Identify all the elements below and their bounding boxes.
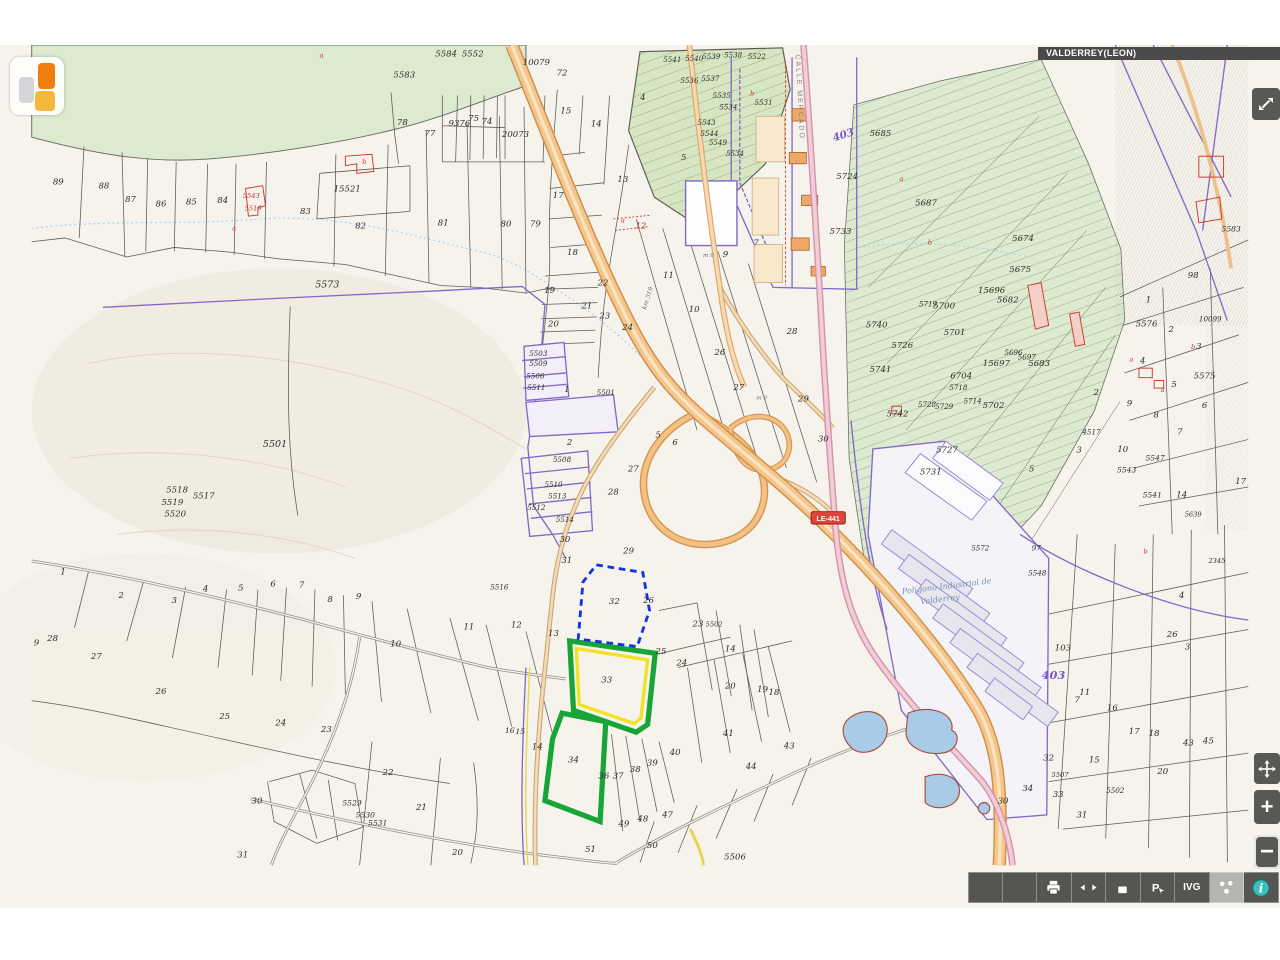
parcel-label: 21 — [580, 301, 592, 311]
parcel-label: 20073 — [501, 130, 530, 140]
parcel-label: a — [320, 51, 324, 59]
parcel-label: a — [1161, 386, 1165, 394]
parcel-label: 20 — [451, 848, 463, 858]
parcel-label: 5728 — [918, 400, 937, 409]
parcel-label: 5519 — [162, 498, 184, 508]
parcel-label: 5724 — [836, 172, 858, 182]
zoom-search-button[interactable] — [1003, 872, 1038, 903]
parcel-label: 5518 — [166, 486, 188, 496]
parcel-label: 34 — [568, 756, 579, 766]
parcel-label: 5512 — [527, 503, 546, 512]
parcel-label: 5702 — [983, 401, 1005, 411]
parcel-label: 5520 — [164, 509, 186, 519]
parcel-label: 5740 — [866, 320, 888, 330]
parcel-label: 9 — [356, 592, 362, 602]
parcel-label: 19 — [757, 685, 768, 695]
parcel-label: 16 — [505, 726, 515, 735]
parcel-label: 72 — [557, 68, 568, 78]
layers-share-button[interactable] — [1210, 872, 1245, 903]
parcel-label: 17 — [1235, 477, 1246, 487]
parcel-label: 11 — [1079, 688, 1090, 698]
parcel-label: 87 — [125, 195, 136, 205]
parcel-label: 14 — [532, 742, 543, 752]
parcel-label: 16 — [1107, 703, 1118, 713]
parcel-label: b — [362, 158, 366, 166]
parcel-label: 14 — [725, 644, 736, 654]
parcel-label: 13 — [548, 629, 559, 639]
parcel-label: 403 — [1042, 668, 1066, 682]
parcel-label: a — [621, 217, 625, 225]
parcel-label: 6 — [270, 580, 276, 590]
zoom-in-button[interactable]: + — [1254, 790, 1280, 824]
parcel-label: 26 — [155, 687, 167, 697]
parcel-label: 5506 — [724, 853, 746, 863]
parcel-label: 10 — [1117, 445, 1128, 455]
fullscreen-button[interactable] — [1252, 88, 1280, 120]
parcel-label: 5575 — [1194, 372, 1216, 382]
parcel-label: 31 — [561, 556, 572, 566]
parcel-label: 15697 — [983, 359, 1011, 369]
parcel-label: 26 — [1166, 630, 1178, 640]
parcel-label: 29 — [622, 546, 634, 556]
parcel-label: 5718 — [949, 383, 968, 392]
parcel-label: 11 — [463, 623, 474, 633]
parcel-label: 31 — [1077, 811, 1088, 821]
p-label: P — [1152, 882, 1160, 894]
parcel-label: 30 — [818, 434, 829, 444]
parcel-label: 4 — [1178, 591, 1184, 601]
parcel-label: 27 — [90, 652, 102, 662]
parcel-label: 24 — [675, 659, 687, 669]
parcel-label: b — [1144, 547, 1148, 555]
parcel-label: 79 — [530, 220, 541, 230]
parcel-label: 18 — [769, 688, 780, 698]
parcel-label: 5741 — [870, 365, 892, 375]
parcel-label: 3 — [1076, 446, 1082, 456]
parcel-label: 41 — [722, 729, 734, 739]
parcel-label: 2 — [566, 438, 572, 448]
parcel-label: 5 — [681, 153, 686, 163]
parcel-label: 5639 — [1185, 510, 1203, 518]
parcel-label: 24 — [274, 719, 286, 729]
parcel-label: a — [232, 224, 236, 232]
parcel-label: 30 — [252, 796, 263, 806]
parcel-label: 5507 — [1052, 771, 1070, 779]
parcel-label: 5552 — [462, 49, 484, 59]
parcel-label: 5516 — [490, 583, 509, 592]
parcel-label: 5508 — [553, 455, 572, 464]
parcel-label: 3 — [1185, 642, 1191, 652]
parcel-label: 14 — [591, 120, 602, 130]
parcel-label: 15696 — [978, 286, 1006, 296]
parcel-label: 10079 — [523, 58, 551, 68]
parcel-label: 18 — [1149, 729, 1160, 739]
parcel-label: 97 — [1032, 544, 1042, 553]
parcel-label: 77 — [425, 129, 436, 139]
parcel-label: 13 — [617, 175, 628, 185]
parcel-label: 5513 — [548, 491, 567, 500]
parcel-label: LE-441 — [817, 515, 840, 523]
parcel-label: 10 — [390, 640, 401, 650]
parcel-label: 10 — [689, 305, 700, 315]
parcel-label: 5522 — [748, 52, 767, 61]
parcel-label: 83 — [300, 207, 311, 217]
parcel-label: 8 — [1153, 411, 1159, 421]
parcel-label: b — [928, 239, 932, 247]
parcel-tool-button[interactable]: P — [1141, 872, 1176, 903]
parcel-label: 5543 — [243, 192, 260, 200]
parcel-label: 18 — [567, 248, 578, 258]
parcel-label: 5714 — [964, 396, 982, 405]
parcel-label: 20 — [547, 319, 559, 329]
parcel-label: 11 — [663, 271, 674, 281]
parcel-label: 5534 — [726, 149, 744, 158]
parcel-label: 5727 — [936, 446, 958, 456]
parcel-label: 5538 — [724, 50, 743, 59]
parcel-label: 5683 — [1028, 359, 1050, 369]
parcel-label: 82 — [355, 221, 366, 231]
parcel-label: 89 — [53, 178, 64, 188]
parcel-label: 1 — [60, 567, 65, 577]
parcel-label: 32 — [609, 597, 620, 607]
parcel-label: 26 — [713, 348, 725, 358]
parcel-label: 15 — [515, 727, 525, 736]
parcel-label: 30 — [559, 535, 570, 545]
parcel-label: 5583 — [393, 70, 415, 80]
padlock-icon — [1114, 879, 1131, 896]
info-button[interactable]: i — [1244, 872, 1279, 903]
parcel-label: 28 — [607, 488, 619, 498]
parcel-label: 5 — [238, 584, 243, 594]
parcel-label: 6 — [1202, 401, 1208, 411]
parcel-label: 5510 — [544, 480, 563, 489]
parcel-label: 5502 — [1106, 786, 1125, 795]
parcel-label: 8 — [327, 595, 333, 605]
double-arrow-icon — [1080, 879, 1097, 896]
pan-icon — [1258, 760, 1276, 778]
parcel-label: 27 — [627, 465, 639, 475]
parcel-label: m 0 — [756, 396, 767, 402]
parcel-label: 12 — [511, 621, 522, 631]
parcel-label: 5742 — [887, 410, 909, 420]
parcel-label: 14 — [1176, 490, 1187, 500]
parcel-label: 21 — [415, 803, 427, 813]
parcel-label: m 0 — [703, 253, 714, 259]
parcel-label: 80 — [501, 220, 512, 230]
parcel-label: 5529 — [342, 798, 361, 807]
plus-icon: + — [1261, 794, 1274, 820]
parcel-label: 28 — [46, 634, 58, 644]
parcel-label: 48 — [636, 815, 648, 825]
parcel-label: 5543 — [1117, 466, 1136, 475]
zoom-out-button[interactable]: − — [1254, 835, 1280, 869]
parcel-label: 15521 — [334, 184, 361, 194]
parcel-label: 33 — [601, 676, 612, 686]
parcel-label: a — [899, 175, 903, 183]
lock-button[interactable] — [1106, 872, 1141, 903]
parcel-label: 5506 — [526, 372, 545, 381]
info-label: i — [1258, 881, 1263, 895]
parcel-label: 5731 — [920, 468, 942, 478]
parcel-label: 6704 — [950, 372, 972, 382]
parcel-label: 15 — [1089, 756, 1100, 766]
parcel-label: 47 — [661, 811, 673, 821]
parcel-label: 98 — [1188, 271, 1199, 281]
parcel-label: 44 — [745, 762, 757, 772]
parcel-label: 5576 — [1136, 319, 1158, 329]
bottom-toolbar: P IVG i — [968, 872, 1279, 903]
parcel-label: 37 — [613, 772, 624, 782]
parcel-label: 9 — [1127, 399, 1133, 409]
minus-icon: − — [1260, 838, 1274, 866]
parcel-label: 22 — [596, 278, 608, 288]
parcel-label: 5685 — [870, 129, 892, 139]
parcel-label: 5509 — [529, 359, 548, 368]
parcel-label: 23 — [692, 620, 704, 630]
parcel-label: 5573 — [315, 279, 339, 290]
parcel-label: 78 — [397, 118, 408, 128]
parcel-label: 43 — [783, 741, 795, 751]
gis-viewer-app: { "app": { "municipality_label": "VALDER… — [0, 0, 1280, 960]
parcel-label: 75 — [468, 114, 479, 124]
parcel-label: b — [750, 89, 754, 97]
parcel-label: 5 — [1029, 465, 1034, 475]
parcel-label: 5719 — [919, 299, 938, 308]
parcel-label: 3 — [172, 596, 178, 606]
parcel-label: 20 — [724, 681, 736, 691]
ivg-button[interactable]: IVG — [1175, 872, 1210, 903]
info-circle-icon: i — [1251, 878, 1271, 898]
parcel-label: 33 — [1053, 790, 1064, 800]
parcel-label: 5519 — [245, 204, 263, 212]
expand-icon — [1257, 95, 1275, 113]
printer-icon — [1045, 879, 1062, 896]
parcel-label: 5584 — [435, 49, 457, 59]
logo-orange-block — [38, 63, 55, 89]
parcel-label: 5548 — [1028, 568, 1047, 577]
parcel-label: 5547 — [1145, 453, 1164, 462]
parcel-label: 5674 — [1012, 234, 1034, 244]
parcel-label: 31 — [237, 851, 248, 861]
parcel-label: 84 — [217, 196, 228, 206]
print-button[interactable] — [1037, 872, 1072, 903]
parcel-label: 6 — [672, 438, 678, 448]
cursor-icon — [1159, 888, 1164, 895]
map-viewport[interactable]: 8988878685848382818079155215573787793767… — [0, 45, 1280, 908]
parcel-label: 1 — [1146, 296, 1151, 306]
parcel-label: 20 — [1156, 767, 1168, 777]
parcel-label: 17 — [1129, 727, 1140, 737]
parcel-label: 27 — [732, 383, 744, 393]
parcel-label: 5541 — [1143, 490, 1162, 499]
parcel-label: 4 — [1139, 356, 1145, 366]
parcel-label: 5572 — [971, 544, 990, 553]
parcel-label: 5511 — [527, 383, 545, 392]
parcel-label: 5 — [1171, 380, 1176, 390]
parcel-label: 5 — [655, 431, 660, 441]
parcel-label: 5531 — [368, 818, 387, 827]
parcel-label: 4 — [639, 93, 645, 103]
nodes-icon — [1218, 879, 1235, 896]
parcel-label: 39 — [647, 758, 658, 768]
parcel-label: 5503 — [529, 349, 548, 358]
map-canvas[interactable]: 8988878685848382818079155215573787793767… — [0, 45, 1280, 908]
parcel-label: 88 — [99, 182, 110, 192]
parcel-label: 45 — [1202, 737, 1214, 747]
parcel-label: 5583 — [1222, 224, 1241, 233]
parcel-label: 5687 — [915, 199, 937, 209]
parcel-label: 5541 — [663, 55, 681, 64]
parcel-label: 28 — [786, 327, 798, 337]
parcel-label: 5682 — [997, 296, 1019, 306]
ivg-label: IVG — [1183, 882, 1200, 893]
parcel-label: 7 — [1177, 428, 1183, 438]
parcel-label: 5517 — [193, 491, 215, 501]
parcel-label: 3 — [1196, 342, 1202, 352]
parcel-label: 5501 — [263, 439, 287, 450]
parcel-label: 50 — [647, 841, 658, 851]
parcel-label: 25 — [654, 647, 666, 657]
magnifier-icon — [1011, 879, 1028, 896]
chevron-right-icon — [977, 880, 993, 896]
logo-gray-block — [19, 77, 34, 103]
parcel-label: 43 — [1182, 738, 1194, 748]
logo-yellow-block — [35, 91, 55, 111]
parcel-label: 86 — [156, 200, 167, 210]
parcel-label: 5534 — [719, 103, 737, 112]
parcel-label: a — [1129, 355, 1133, 363]
parcel-label: 12 — [636, 221, 647, 231]
parcel-label: 19 — [544, 286, 555, 296]
measure-button[interactable] — [1072, 872, 1107, 903]
parcel-label: b — [1191, 343, 1195, 351]
municipality-label: VALDERREY(LEON) — [1038, 47, 1280, 60]
parcel-label: 5514 — [556, 515, 574, 524]
parcel-label: 5543 — [697, 118, 716, 127]
parcel-label: 25 — [218, 712, 230, 722]
parcel-label: 5535 — [713, 91, 732, 100]
parcel-label: 24 — [621, 323, 633, 333]
parcel-label: 30 — [998, 796, 1009, 806]
parcel-label: 17 — [553, 191, 564, 201]
parcel-label: 23 — [598, 312, 610, 322]
parcel-label: 2 — [117, 591, 123, 601]
collapse-panel-button[interactable] — [968, 872, 1003, 903]
parcel-label: 5729 — [935, 402, 954, 411]
parcel-label: 32 — [1043, 754, 1054, 764]
parcel-label: 9 — [723, 250, 729, 260]
app-logo[interactable] — [10, 57, 64, 115]
parcel-label: 5539 — [702, 52, 721, 61]
parcel-label: 85 — [186, 198, 197, 208]
pan-button[interactable] — [1254, 753, 1280, 784]
parcel-label: 5536 — [680, 76, 699, 85]
parcel-label: 15 — [560, 106, 571, 116]
parcel-label: 74 — [482, 117, 493, 127]
parcel-label: 36 — [598, 772, 609, 782]
parcel-label: 22 — [382, 768, 394, 778]
parcel-label: 29 — [797, 394, 809, 404]
parcel-label: 5549 — [709, 138, 728, 147]
parcel-label: 40 — [669, 748, 681, 758]
parcel-label: 26 — [642, 596, 654, 606]
parcel-label: 5537 — [701, 74, 720, 83]
parcel-label: 5501 — [597, 388, 615, 397]
parcel-label: 5675 — [1009, 265, 1031, 275]
parcel-label: 49 — [617, 819, 629, 829]
parcel-label: 51 — [585, 845, 596, 855]
parcel-label: 1 — [564, 385, 569, 395]
parcel-label: 2 — [1092, 388, 1098, 398]
parcel-label: 34 — [1022, 784, 1033, 794]
parcel-label: 7 — [753, 239, 759, 249]
parcel-label: 5502 — [706, 621, 723, 629]
parcel-label: 4 — [202, 585, 208, 595]
parcel-label: 2 — [1168, 325, 1174, 335]
parcel-label: 5701 — [944, 328, 966, 338]
parcel-label: 2345 — [1207, 557, 1225, 565]
parcel-label: 38 — [630, 765, 641, 775]
parcel-label: 103 — [1055, 643, 1072, 653]
parcel-label: 7 — [299, 581, 305, 591]
parcel-label: 5726 — [891, 341, 913, 351]
parcel-label: 5531 — [755, 98, 773, 107]
parcel-label: 10099 — [1199, 315, 1222, 324]
parcel-label: 23 — [320, 725, 332, 735]
parcel-label: 5540 — [685, 54, 704, 63]
parcel-label: 9 — [34, 639, 40, 649]
parcel-label: 5733 — [830, 227, 852, 237]
parcel-label: 4517 — [1081, 428, 1101, 437]
parcel-label: 81 — [438, 219, 449, 229]
